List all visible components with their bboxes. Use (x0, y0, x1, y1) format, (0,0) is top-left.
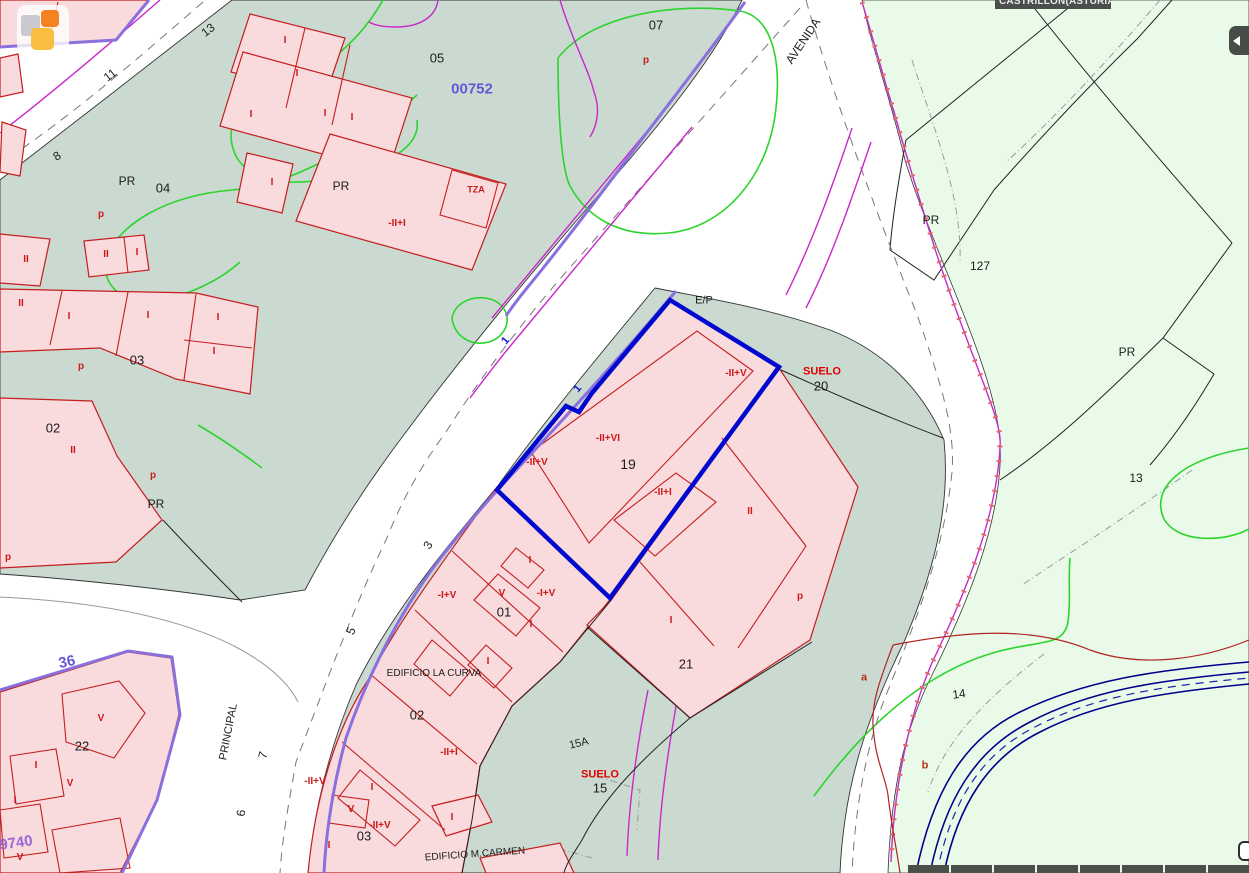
logo-amber-square-icon (31, 28, 54, 50)
scale-bar-segment (1080, 865, 1121, 873)
region-name-bar: CASTRILLON(ASTURIAS) (995, 0, 1111, 9)
scale-bar-segment (1122, 865, 1163, 873)
logo-orange-square-icon (41, 10, 59, 27)
scale-bar-segment (908, 865, 949, 873)
scale-bar-segment (994, 865, 1035, 873)
screenshot-tool-logo (17, 5, 69, 53)
scale-bar-segment (951, 865, 992, 873)
region-name-label: CASTRILLON(ASTURIAS) (999, 0, 1111, 7)
scale-bar-segment (1037, 865, 1078, 873)
chevron-left-icon (1233, 36, 1240, 46)
map-control-button[interactable] (1238, 841, 1249, 861)
collapse-panel-button[interactable] (1229, 26, 1249, 55)
scale-bar-segment (1208, 865, 1249, 873)
scale-bar-segment (1165, 865, 1206, 873)
scale-bar (908, 865, 1249, 873)
map-viewport[interactable]: 050704PRPR0302PRE/P192021010203221515APR… (0, 0, 1249, 873)
map-canvas[interactable] (0, 0, 1249, 873)
